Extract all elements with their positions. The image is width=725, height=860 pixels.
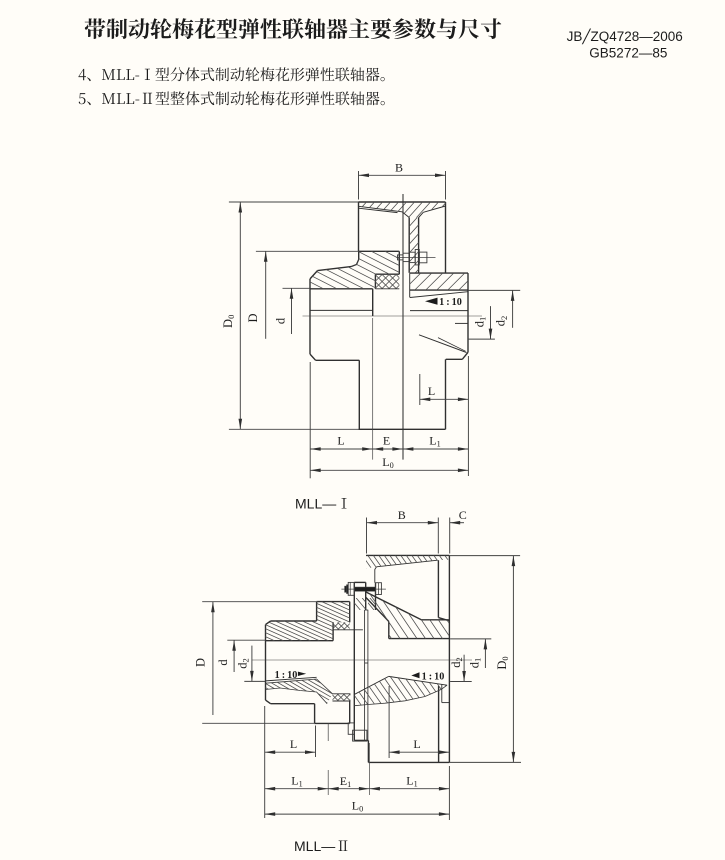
svg-text:d: d (274, 317, 288, 324)
svg-text:MLL—: MLL— (294, 838, 335, 854)
svg-text:D: D (194, 658, 208, 667)
svg-text:E: E (383, 434, 390, 448)
svg-text:d: d (216, 659, 230, 666)
svg-text:D: D (246, 313, 260, 322)
svg-text:MLL—: MLL— (295, 496, 336, 512)
svg-text:L: L (413, 737, 420, 751)
svg-text:L: L (337, 434, 344, 448)
svg-text:GB5272—85: GB5272—85 (589, 46, 667, 61)
svg-text:B: B (398, 508, 406, 522)
svg-text:1 : 10: 1 : 10 (439, 297, 462, 308)
svg-text:L: L (428, 384, 435, 398)
svg-text:JB╱ZQ4728—2006: JB╱ZQ4728—2006 (567, 28, 683, 45)
svg-text:1 : 10: 1 : 10 (275, 670, 298, 681)
svg-text:L: L (290, 737, 297, 751)
svg-text:1 : 10: 1 : 10 (422, 672, 445, 683)
svg-text:C: C (459, 508, 467, 522)
svg-text:B: B (395, 161, 403, 175)
